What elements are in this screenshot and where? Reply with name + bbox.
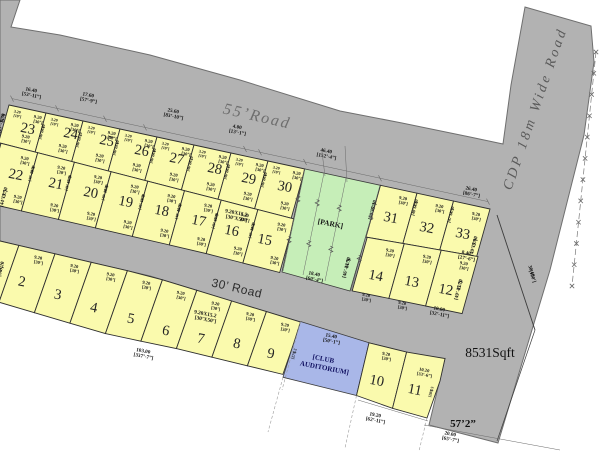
svg-text:57’2”: 57’2” <box>450 418 476 430</box>
svg-text:15: 15 <box>256 231 273 249</box>
svg-text:30: 30 <box>276 178 293 196</box>
svg-text:33: 33 <box>454 225 471 243</box>
svg-text:16: 16 <box>223 222 240 240</box>
svg-text:29: 29 <box>240 170 257 188</box>
svg-text:10: 10 <box>368 372 385 390</box>
svg-text:13: 13 <box>403 273 420 291</box>
svg-text:31: 31 <box>382 209 399 227</box>
svg-text:19: 19 <box>117 193 134 211</box>
svg-text:20: 20 <box>82 184 99 202</box>
svg-text:8531Sqft: 8531Sqft <box>465 345 515 360</box>
svg-text:17: 17 <box>190 212 207 230</box>
svg-text:12: 12 <box>437 281 454 299</box>
svg-text:18: 18 <box>153 202 170 220</box>
svg-text:22: 22 <box>7 166 24 184</box>
svg-text:21: 21 <box>47 175 64 193</box>
svg-text:32: 32 <box>418 219 435 237</box>
